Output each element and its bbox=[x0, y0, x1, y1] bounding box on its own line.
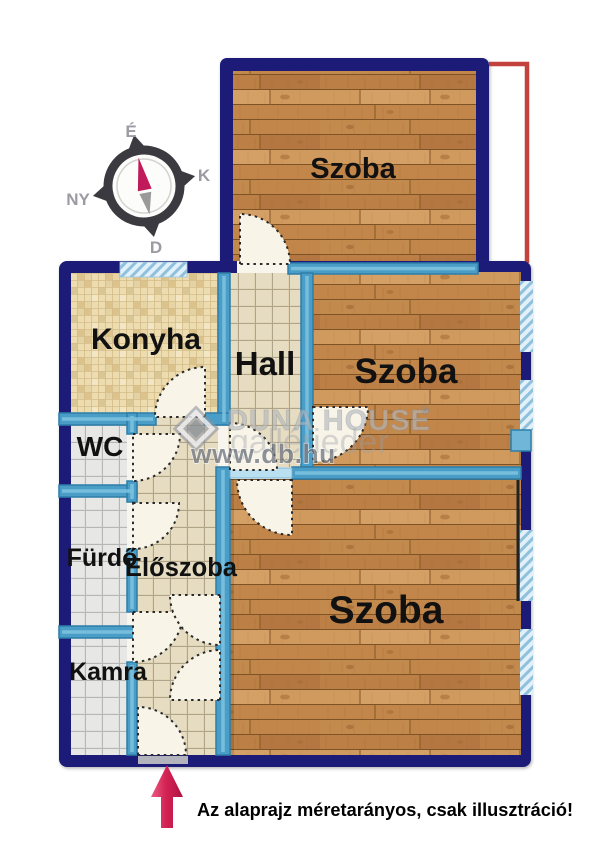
svg-text:Az alaprajz méretarányos, csak: Az alaprajz méretarányos, csak illusztrá… bbox=[197, 800, 573, 820]
svg-text:www.db.hu: www.db.hu bbox=[190, 439, 336, 469]
svg-text:®: ® bbox=[421, 405, 429, 417]
svg-text:É: É bbox=[125, 122, 136, 141]
svg-text:WC: WC bbox=[77, 431, 124, 462]
svg-text:K: K bbox=[198, 166, 211, 185]
svg-text:Hall: Hall bbox=[235, 345, 296, 382]
svg-text:NY: NY bbox=[66, 190, 90, 209]
svg-text:Szoba: Szoba bbox=[354, 352, 458, 391]
svg-text:Szoba: Szoba bbox=[310, 153, 396, 185]
svg-text:Szoba: Szoba bbox=[329, 589, 444, 632]
svg-text:Előszoba: Előszoba bbox=[125, 554, 238, 582]
svg-text:Kamra: Kamra bbox=[69, 658, 148, 686]
svg-text:D: D bbox=[150, 238, 162, 257]
svg-text:Konyha: Konyha bbox=[91, 323, 201, 356]
